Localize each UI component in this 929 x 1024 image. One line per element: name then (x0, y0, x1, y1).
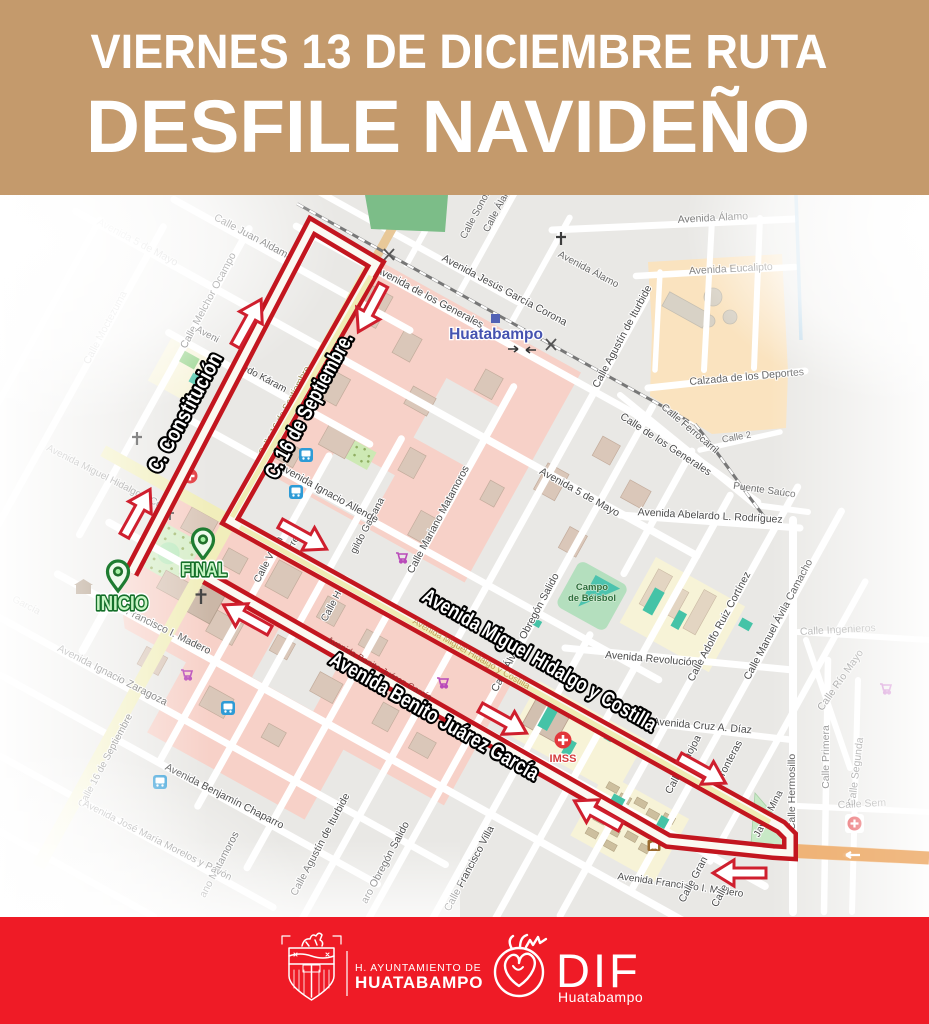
svg-text:Huatabampo: Huatabampo (449, 326, 543, 343)
svg-text:Campo: Campo (576, 582, 608, 593)
svg-text:Huatabampo: Huatabampo (558, 989, 643, 1005)
svg-text:DESFILE NAVIDEÑO: DESFILE NAVIDEÑO (86, 85, 810, 168)
svg-text:IMSS: IMSS (550, 753, 577, 765)
svg-text:de Béisbol: de Béisbol (568, 593, 616, 604)
svg-text:INICIO: INICIO (96, 593, 148, 615)
svg-text:VIERNES 13 DE DICIEMBRE RUTA: VIERNES 13 DE DICIEMBRE RUTA (91, 26, 828, 79)
svg-text:FINAL: FINAL (181, 559, 227, 580)
svg-text:HUATABAMPO: HUATABAMPO (355, 973, 483, 992)
